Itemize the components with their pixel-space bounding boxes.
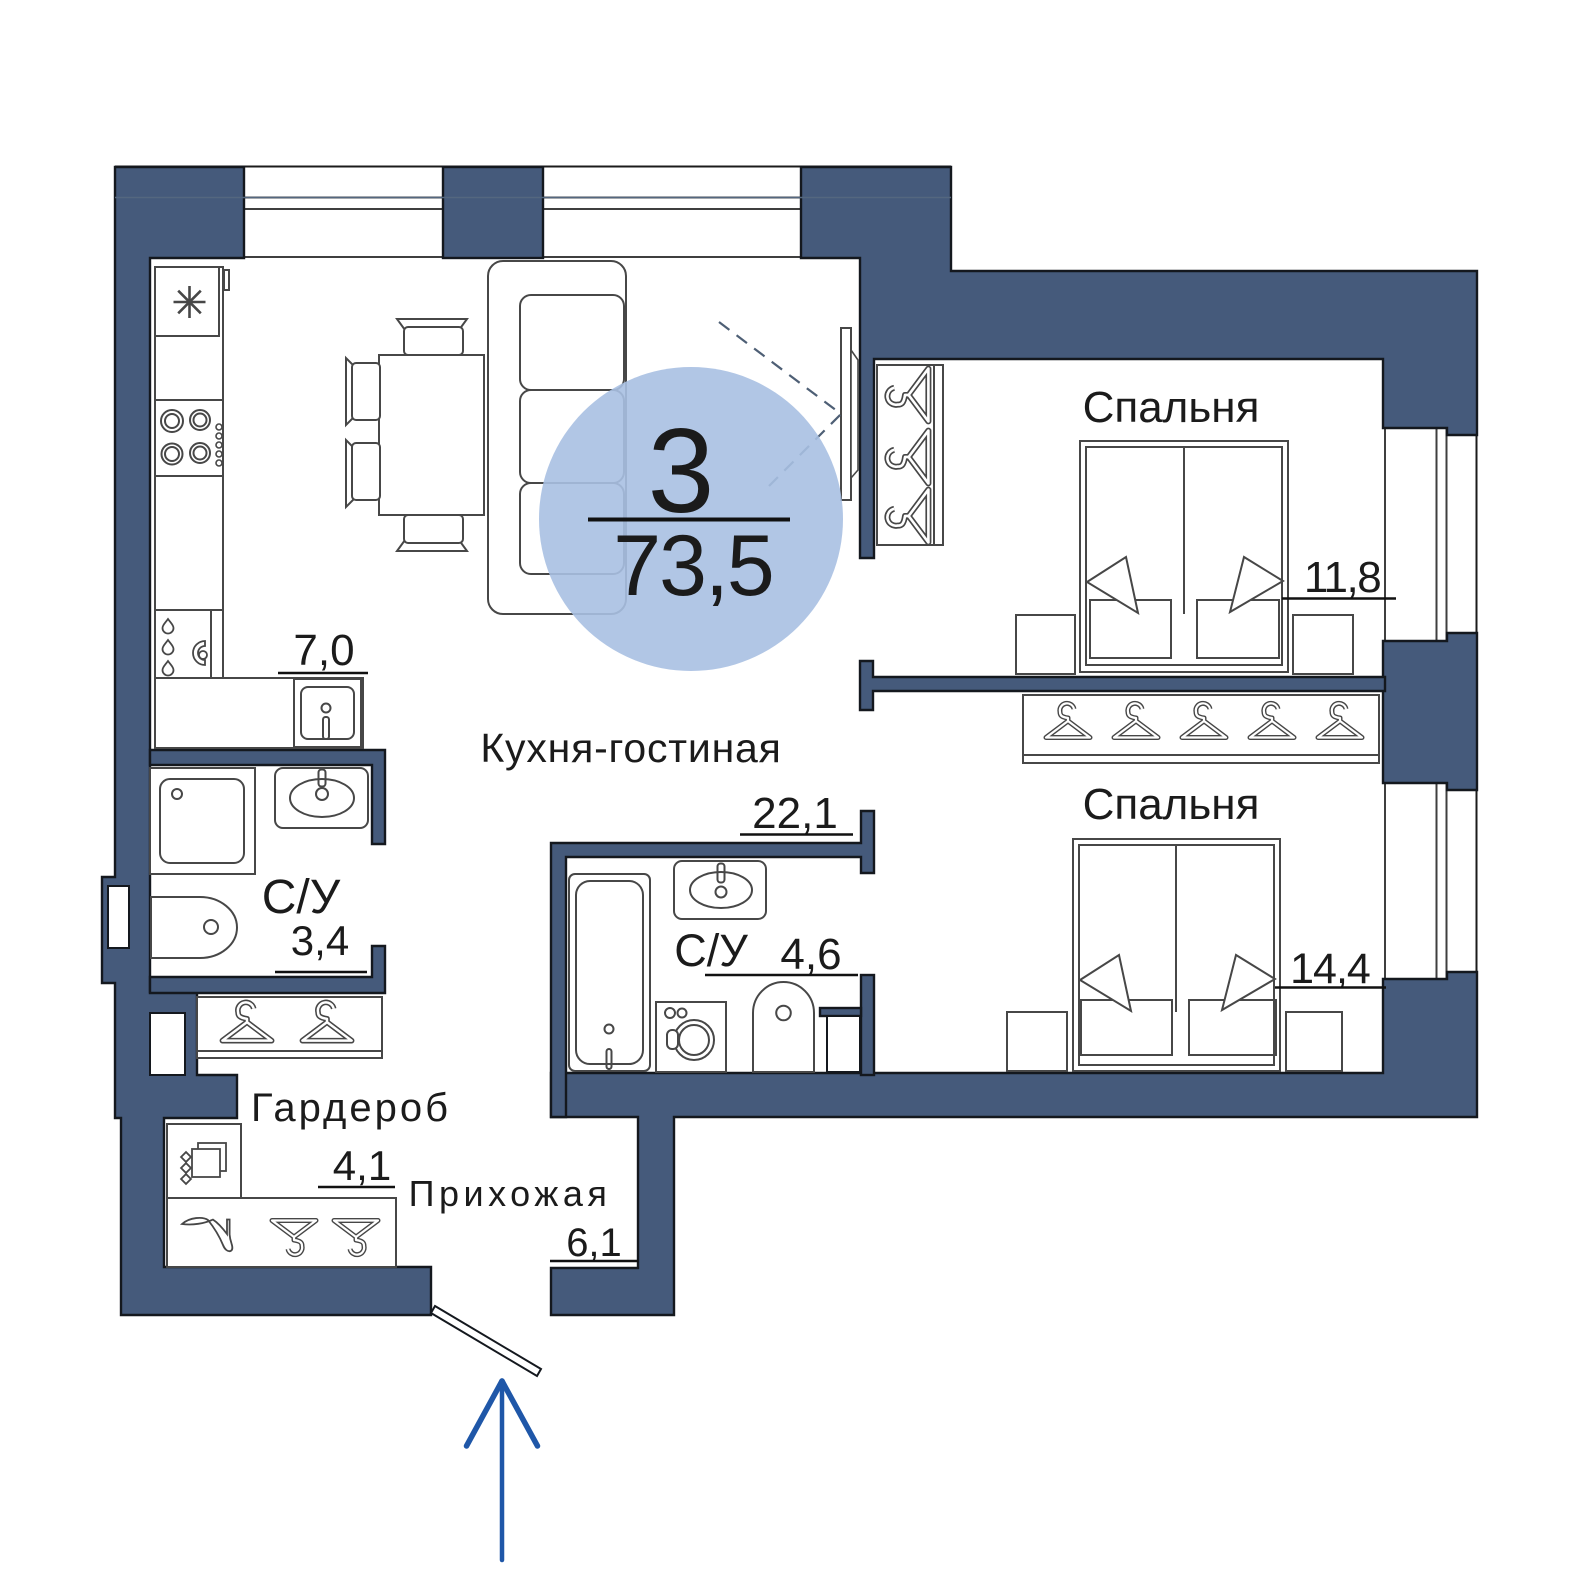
svg-text:11,8: 11,8 [1304, 553, 1380, 602]
svg-text:73,5: 73,5 [613, 518, 772, 614]
svg-text:7,0: 7,0 [293, 626, 354, 675]
svg-text:С/У: С/У [674, 925, 748, 976]
svg-text:Прихожая: Прихожая [409, 1173, 612, 1214]
svg-text:Спальня: Спальня [1083, 383, 1260, 432]
svg-text:Гардероб: Гардероб [251, 1086, 451, 1130]
svg-text:3,4: 3,4 [291, 917, 349, 964]
svg-text:Кухня-гостиная: Кухня-гостиная [480, 725, 781, 771]
svg-text:14,4: 14,4 [1290, 945, 1370, 993]
svg-text:Спальня: Спальня [1083, 780, 1260, 829]
svg-text:22,1: 22,1 [752, 789, 838, 838]
svg-text:4,1: 4,1 [333, 1142, 391, 1189]
svg-text:6,1: 6,1 [566, 1221, 622, 1265]
svg-text:4,6: 4,6 [780, 930, 841, 979]
